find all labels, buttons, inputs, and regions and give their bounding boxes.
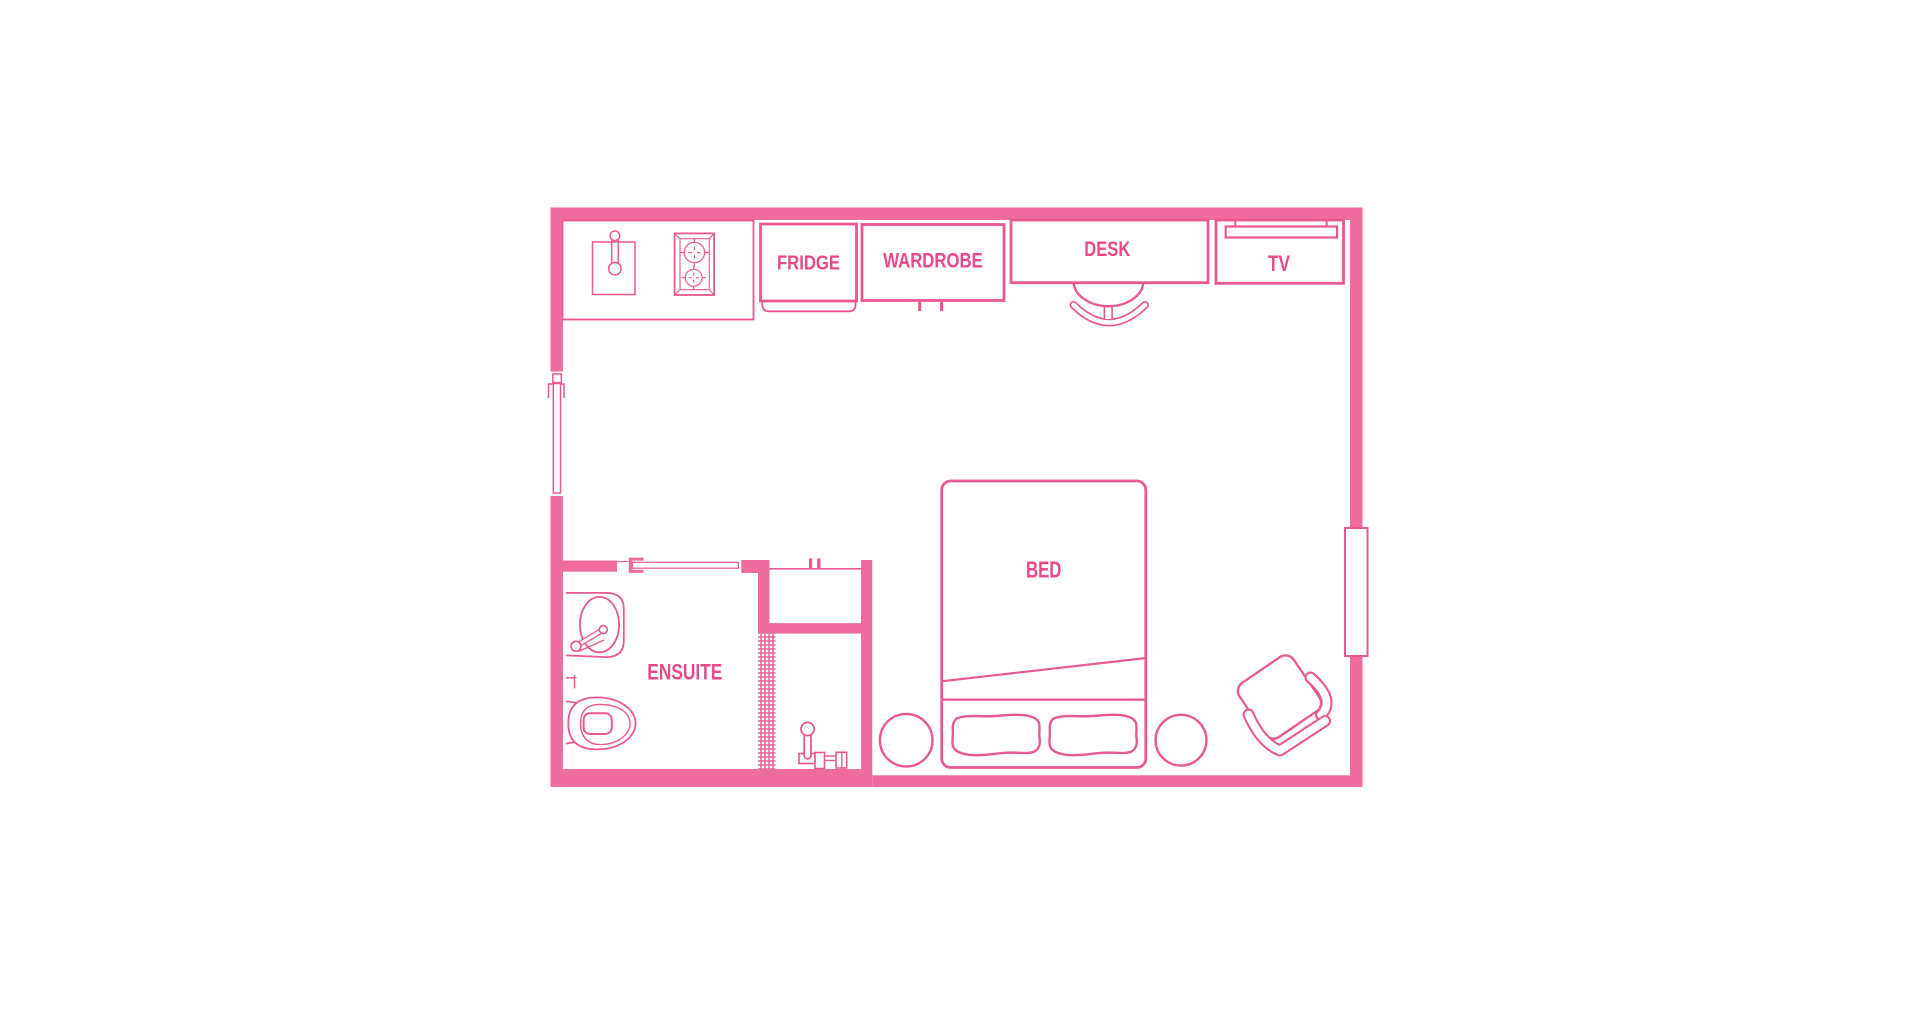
svg-text:FRIDGE: FRIDGE xyxy=(777,252,840,275)
svg-text:DESK: DESK xyxy=(1084,237,1130,261)
svg-text:TV: TV xyxy=(1268,251,1290,276)
svg-text:ENSUITE: ENSUITE xyxy=(647,660,722,685)
svg-text:BED: BED xyxy=(1026,556,1062,582)
svg-text:WARDROBE: WARDROBE xyxy=(883,250,983,273)
